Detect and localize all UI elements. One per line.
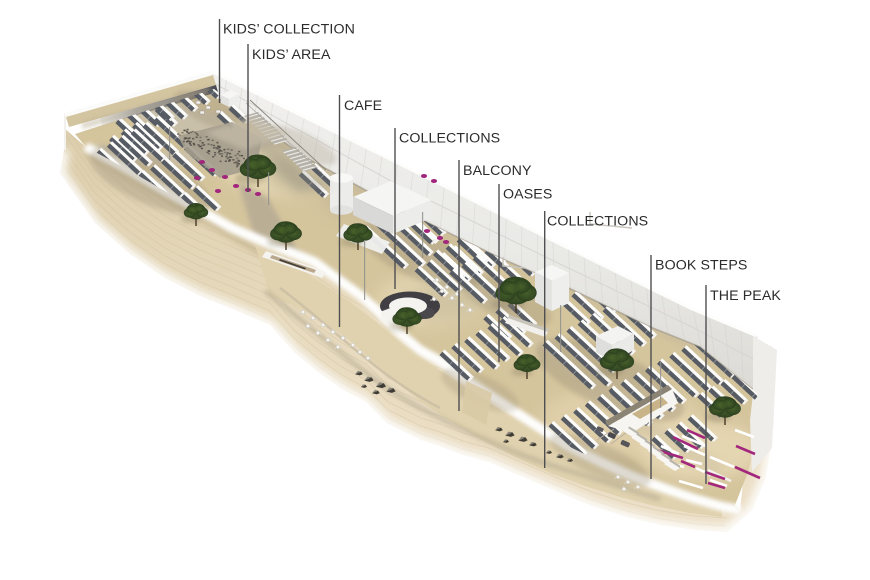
svg-text:CAFE: CAFE: [344, 98, 382, 114]
svg-text:BALCONY: BALCONY: [463, 163, 532, 179]
svg-text:KIDS’ COLLECTION: KIDS’ COLLECTION: [223, 22, 355, 38]
svg-text:KIDS’ AREA: KIDS’ AREA: [252, 47, 331, 63]
svg-text:BOOK STEPS: BOOK STEPS: [655, 258, 747, 274]
svg-text:THE PEAK: THE PEAK: [710, 288, 781, 304]
svg-text:COLLECTIONS: COLLECTIONS: [547, 214, 648, 230]
svg-text:COLLECTIONS: COLLECTIONS: [399, 131, 500, 147]
svg-text:OASES: OASES: [503, 187, 552, 203]
